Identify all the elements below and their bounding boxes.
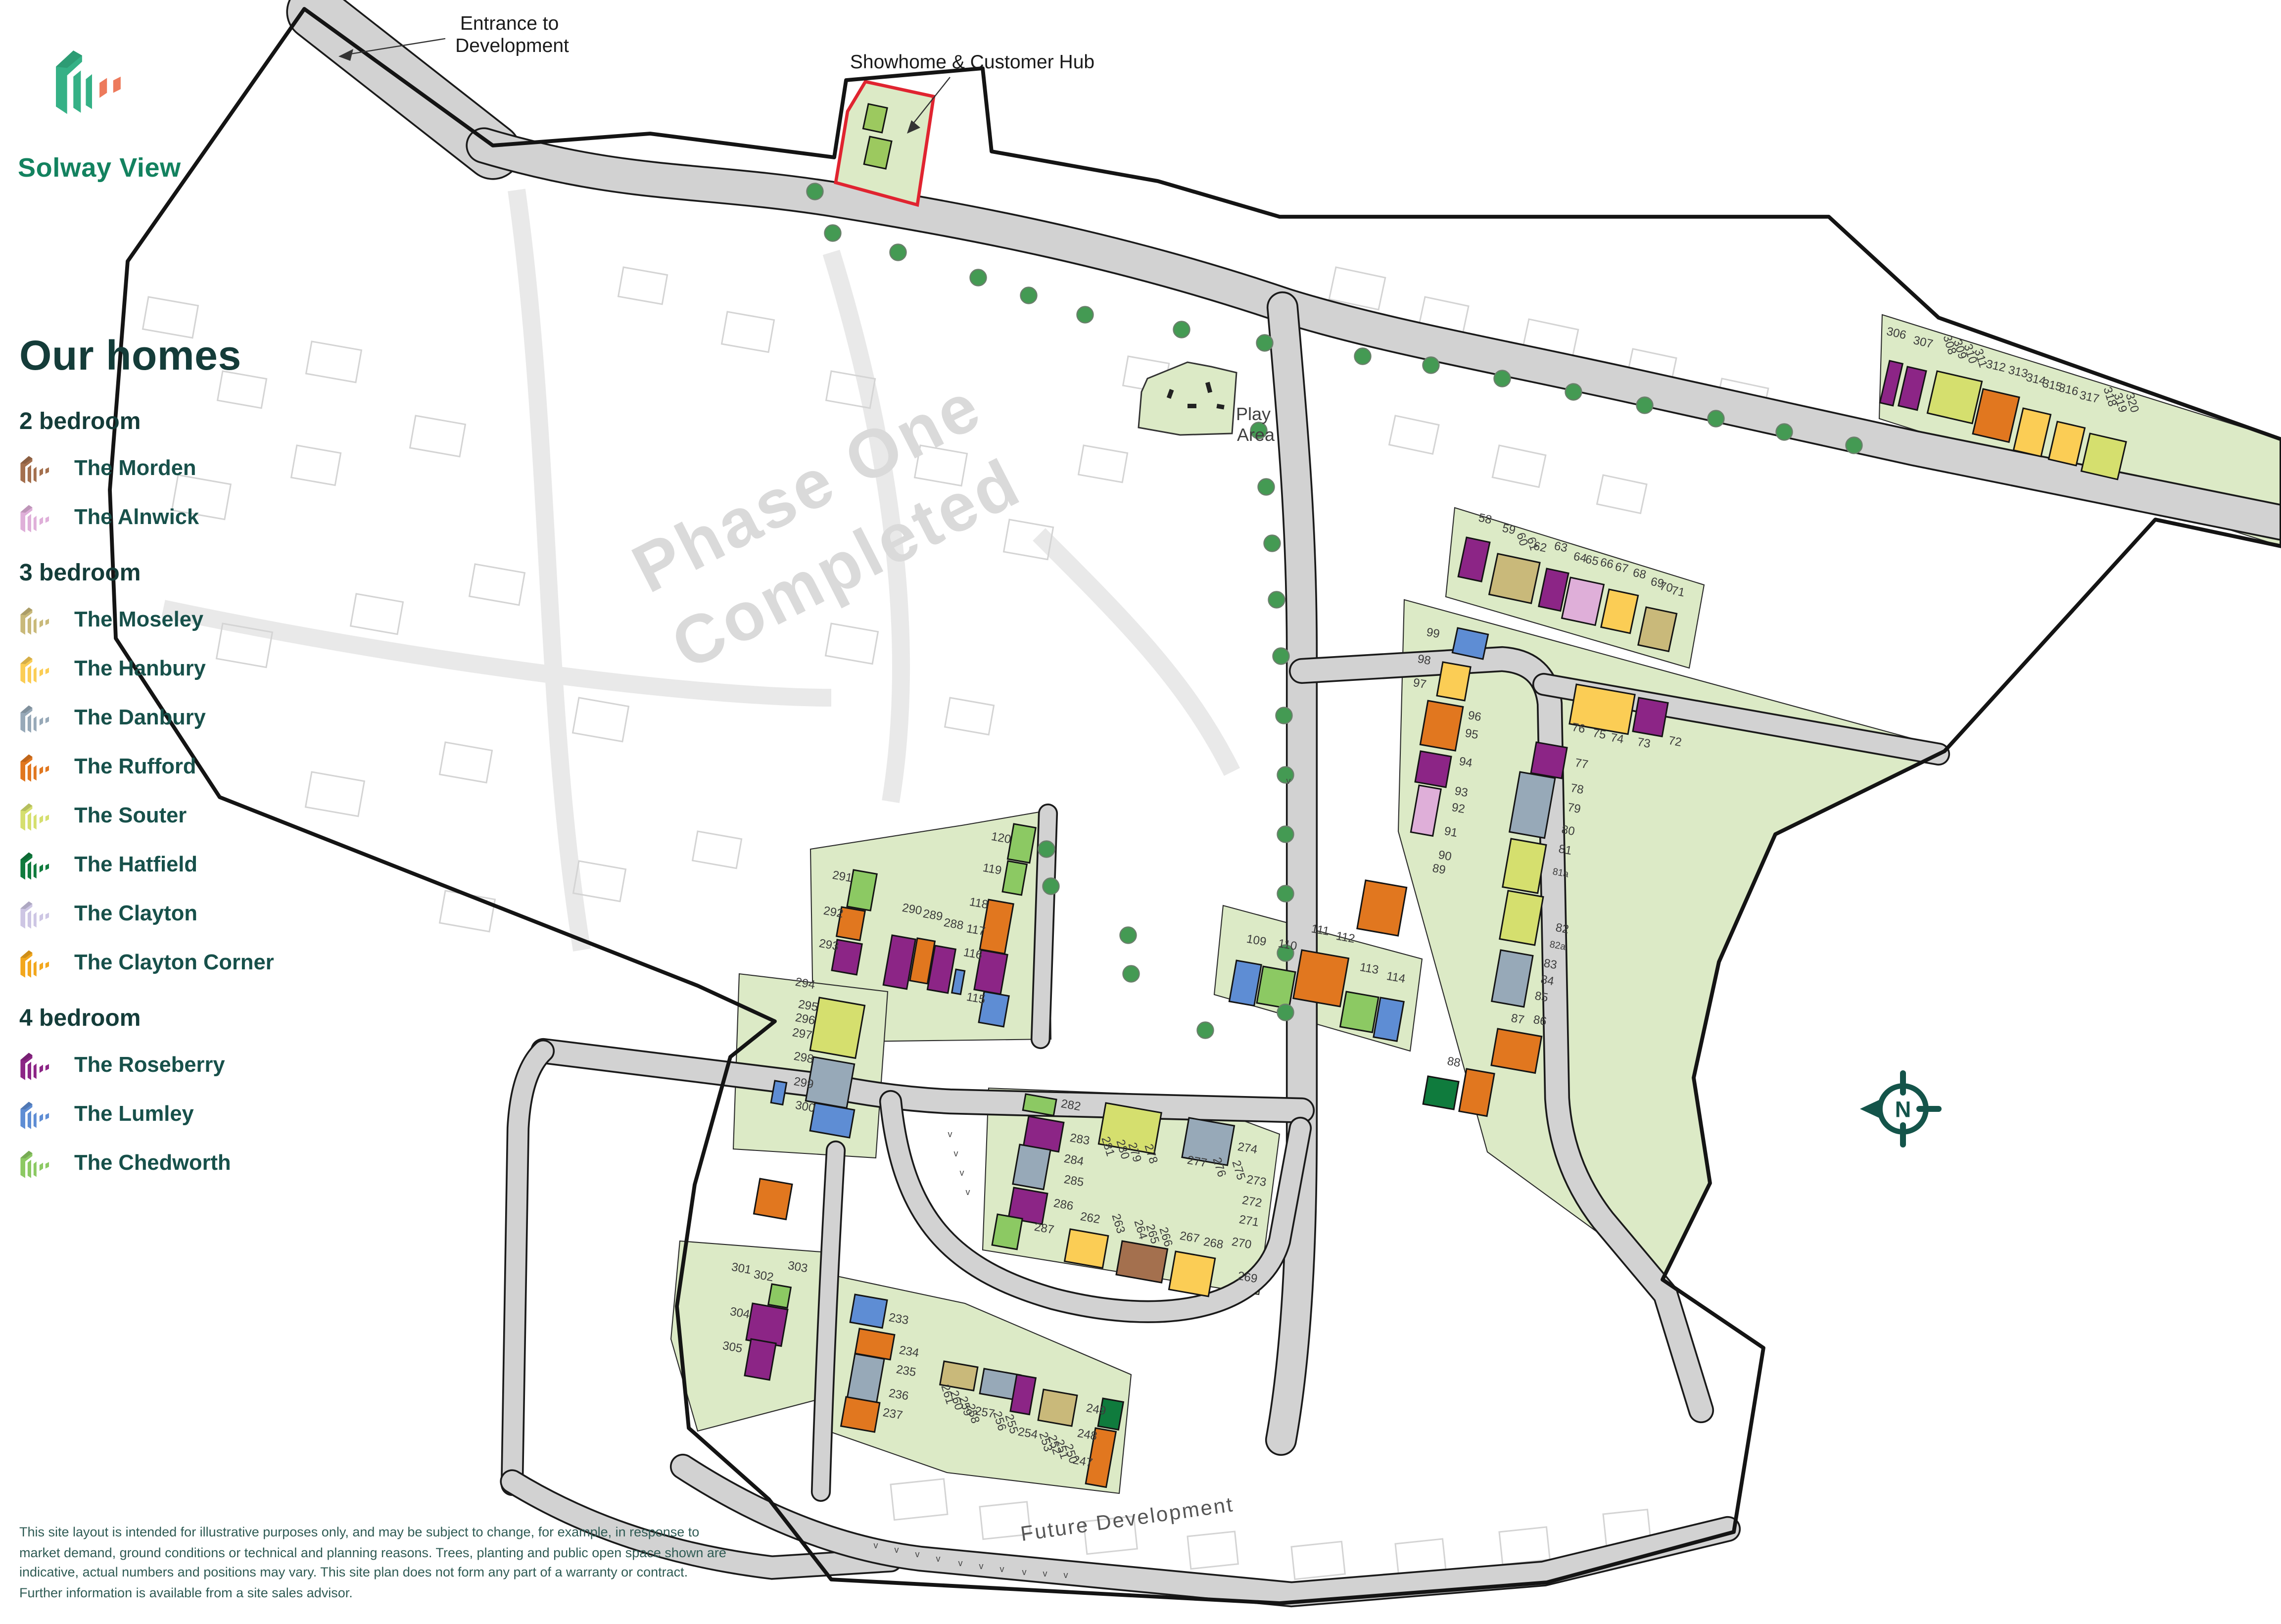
phase1-house-outline	[1597, 475, 1647, 513]
tree-icon	[1264, 535, 1281, 552]
tree-icon	[1174, 322, 1190, 338]
building-roseberry	[1633, 698, 1668, 736]
legend-item-label: The Alnwick	[74, 506, 199, 529]
tree-icon	[1776, 424, 1793, 440]
legend-item-label: The Lumley	[74, 1102, 194, 1126]
tree-icon	[1276, 708, 1292, 724]
legend-item-the-rufford: The Rufford	[19, 742, 509, 791]
plot-label-79: 79	[1567, 801, 1582, 816]
plot-label-94: 94	[1458, 755, 1473, 770]
svg-text:N: N	[1895, 1097, 1911, 1122]
legend-item-the-clayton: The Clayton	[19, 889, 509, 938]
legend-item-label: The Clayton	[74, 902, 197, 926]
house-type-icon	[19, 849, 55, 881]
tree-icon	[1846, 437, 1862, 454]
play-equipment-icon	[1188, 404, 1196, 408]
plot-label-91: 91	[1443, 824, 1459, 840]
building-souter	[1503, 839, 1546, 893]
building-rufford	[754, 1179, 792, 1219]
visitor-parking-mark: v	[948, 1129, 952, 1139]
tree-icon	[1197, 1022, 1214, 1039]
tree-icon	[1355, 348, 1371, 365]
brand-name: Solway View	[18, 153, 181, 184]
tree-icon	[1423, 357, 1439, 374]
building-souter	[2081, 433, 2126, 479]
visitor-parking-mark: v	[1286, 776, 1291, 786]
legend-item-the-chedworth: The Chedworth	[19, 1139, 509, 1188]
building-moseley	[1038, 1389, 1077, 1426]
house-type-icon	[19, 1098, 55, 1131]
building-roseberry	[1415, 751, 1451, 787]
plot-label-82: 82	[1555, 921, 1570, 936]
brand-logo-icon	[53, 39, 131, 125]
plot-label-99: 99	[1426, 625, 1441, 641]
building-rufford	[841, 1397, 880, 1432]
phase1-house-outline	[572, 698, 628, 742]
building-lumley	[850, 1294, 887, 1328]
compass-north-icon: N	[1860, 1073, 1939, 1145]
house-type-icon	[19, 800, 55, 832]
plot-label-87: 87	[1510, 1011, 1525, 1027]
road	[543, 1051, 1302, 1110]
legend-item-label: The Moseley	[74, 608, 203, 632]
phase1-house-outline	[1079, 445, 1128, 482]
building-hanbury	[1169, 1251, 1215, 1296]
phase1-house-outline	[143, 297, 198, 338]
tree-icon	[825, 225, 841, 241]
legend-item-label: The Chedworth	[74, 1151, 231, 1175]
visitor-parking-mark: v	[1043, 1569, 1047, 1578]
legend-group-3-bedroom: 3 bedroom	[19, 561, 509, 588]
building-hanbury	[1437, 662, 1471, 701]
plot-label-97: 97	[1412, 676, 1427, 691]
building-souter	[1927, 371, 1982, 424]
homes-legend: Our homes 2 bedroom The Morden The Alnwi…	[19, 333, 509, 1188]
visitor-parking-mark: v	[915, 1549, 920, 1559]
legend-item-label: The Roseberry	[74, 1053, 225, 1077]
legend-item-the-hatfield: The Hatfield	[19, 840, 509, 889]
legend-item-label: The Clayton Corner	[74, 951, 274, 975]
plot-label-78: 78	[1569, 781, 1585, 797]
legend-item-label: The Danbury	[74, 706, 206, 730]
site-plan-page: vvvvvvvvvvvvvvv3063073083093103113123133…	[0, 0, 2281, 1624]
legend-item-the-danbury: The Danbury	[19, 693, 509, 742]
plot-label-62: 62	[1532, 539, 1548, 555]
visitor-parking-mark: v	[895, 1545, 899, 1555]
visitor-parking-mark: v	[1022, 1567, 1027, 1577]
plot-label-98: 98	[1417, 652, 1432, 668]
plot-label-89: 89	[1431, 861, 1447, 877]
plot-label-72: 72	[1667, 734, 1683, 749]
visitor-parking-mark: v	[874, 1540, 878, 1550]
building-rufford	[1491, 1029, 1542, 1073]
plot-label-84: 84	[1540, 973, 1555, 988]
tree-icon	[890, 244, 906, 261]
house-type-icon	[19, 604, 55, 636]
legend-item-label: The Morden	[74, 457, 196, 480]
building-lumley	[810, 1103, 855, 1138]
visitor-parking-mark: v	[966, 1187, 970, 1197]
legend-item-the-alnwick: The Alnwick	[19, 493, 509, 542]
house-type-icon	[19, 751, 55, 783]
phase1-house-outline	[1188, 1531, 1238, 1569]
showhome-label: Showhome & Customer Hub	[850, 51, 1094, 73]
tree-icon	[1278, 886, 1294, 902]
plot-label-95: 95	[1464, 726, 1479, 742]
legend-item-the-clayton-corner: The Clayton Corner	[19, 938, 509, 987]
building-moseley	[1489, 554, 1540, 603]
building-souter	[810, 998, 864, 1058]
entrance-label: Entrance to Development	[455, 13, 569, 56]
plot-label-77: 77	[1574, 756, 1589, 771]
building-rufford	[1420, 701, 1463, 751]
phase1-house-outline	[826, 623, 878, 664]
house-type-icon	[19, 947, 55, 979]
phase-one-watermark: Phase One Completed	[621, 367, 1033, 684]
building-rufford	[1357, 880, 1407, 936]
tree-icon	[1120, 927, 1137, 944]
house-type-icon	[19, 898, 55, 930]
house-type-icon	[19, 1147, 55, 1180]
plot-label-74: 74	[1610, 731, 1625, 746]
plot-label-80: 80	[1561, 823, 1576, 838]
legend-item-the-souter: The Souter	[19, 791, 509, 840]
building-morden	[1116, 1241, 1168, 1283]
tree-icon	[1278, 1004, 1294, 1021]
building-roseberry	[745, 1339, 776, 1380]
phase1-house-outline	[945, 698, 994, 735]
building-chedworth	[1340, 992, 1378, 1032]
building-hatfield	[1423, 1076, 1459, 1109]
visitor-parking-mark: v	[958, 1558, 963, 1568]
building-lumley	[1452, 628, 1488, 659]
tree-icon	[807, 184, 823, 200]
plot-label-93: 93	[1454, 784, 1469, 800]
disclaimer-text: This site layout is intended for illustr…	[19, 1523, 732, 1603]
phase1-house-outline	[1492, 445, 1546, 487]
road	[484, 145, 2281, 523]
plot-label-73: 73	[1636, 735, 1652, 751]
legend-item-label: The Souter	[74, 804, 187, 828]
house-type-icon	[19, 702, 55, 734]
tree-icon	[1278, 767, 1294, 783]
legend-group-4-bedroom: 4 bedroom	[19, 1006, 509, 1033]
tree-icon	[1043, 878, 1059, 895]
tree-icon	[1021, 287, 1037, 304]
tree-icon	[1494, 371, 1511, 387]
phase1-house-outline	[1389, 416, 1439, 454]
legend-item-label: The Rufford	[74, 755, 196, 779]
legend-item-the-lumley: The Lumley	[19, 1090, 509, 1139]
legend-item-the-moseley: The Moseley	[19, 595, 509, 644]
phase1-house-outline	[891, 1479, 948, 1520]
building-showgreen	[863, 104, 887, 133]
future-development-label: Future Development	[1019, 1492, 1236, 1545]
play-area	[1139, 362, 1236, 435]
building-chedworth	[992, 1214, 1022, 1249]
plot-label-86: 86	[1532, 1013, 1548, 1028]
legend-item-the-morden: The Morden	[19, 444, 509, 493]
tree-icon	[1258, 479, 1275, 495]
phase1-road	[1039, 534, 1232, 772]
plot-label-76: 76	[1571, 720, 1586, 736]
building-showgreen	[864, 137, 892, 169]
tree-icon	[970, 270, 987, 286]
tree-icon	[1077, 307, 1093, 323]
house-type-icon	[19, 1049, 55, 1082]
plot-label-67: 67	[1614, 560, 1630, 576]
visitor-parking-mark: v	[1000, 1564, 1004, 1574]
plot-label-65: 65	[1584, 553, 1600, 569]
plot-label-68: 68	[1632, 566, 1648, 582]
tree-icon	[1257, 335, 1273, 351]
plot-label-81: 81	[1558, 842, 1573, 858]
building-chedworth	[768, 1284, 791, 1308]
building-hanbury	[1065, 1229, 1108, 1268]
house-type-icon	[19, 452, 55, 485]
legend-group-2-bedroom: 2 bedroom	[19, 410, 509, 436]
plot-label-66: 66	[1599, 556, 1615, 572]
tree-icon	[1566, 384, 1582, 400]
legend-item-label: The Hanbury	[74, 657, 206, 681]
plot-label-63: 63	[1553, 539, 1569, 555]
plot-label-75: 75	[1592, 726, 1607, 742]
tree-icon	[1278, 826, 1294, 843]
plot-label-58: 58	[1477, 511, 1493, 527]
play-area-label: Play Area	[1236, 404, 1276, 445]
phase1-road	[517, 190, 582, 950]
plot-label-83: 83	[1543, 956, 1558, 972]
phase1-house-outline	[1291, 1541, 1345, 1579]
building-souter	[1500, 891, 1543, 945]
tree-icon	[1637, 397, 1653, 414]
tree-icon	[1123, 966, 1140, 982]
legend-title: Our homes	[19, 333, 509, 380]
phase1-house-outline	[1499, 1527, 1550, 1565]
visitor-parking-mark: v	[936, 1554, 941, 1564]
building-danbury	[1013, 1145, 1050, 1190]
visitor-parking-mark: v	[954, 1148, 958, 1158]
legend-item-the-hanbury: The Hanbury	[19, 644, 509, 693]
plot-label-71: 71	[1670, 584, 1686, 600]
legend-item-the-roseberry: The Roseberry	[19, 1041, 509, 1090]
visitor-parking-mark: v	[979, 1561, 984, 1571]
plot-label-88: 88	[1446, 1054, 1462, 1070]
phase1-house-outline	[693, 831, 742, 868]
plot-label-85: 85	[1534, 989, 1549, 1004]
building-rufford	[1293, 950, 1349, 1006]
legend-item-label: The Hatfield	[74, 853, 197, 877]
phase1-house-outline	[618, 267, 667, 304]
tree-icon	[1708, 411, 1724, 427]
house-type-icon	[19, 653, 55, 685]
phase1-house-outline	[722, 312, 774, 352]
visitor-parking-mark: v	[960, 1168, 964, 1178]
plot-label-92: 92	[1451, 801, 1466, 816]
tree-icon	[1039, 841, 1055, 858]
building-chedworth	[1257, 966, 1295, 1008]
plot-label-90: 90	[1437, 848, 1453, 863]
plot-label-96: 96	[1467, 709, 1482, 724]
building-roseberry	[1531, 742, 1567, 778]
house-type-icon	[19, 501, 55, 534]
road	[512, 1051, 543, 1484]
tree-icon	[1269, 592, 1285, 608]
visitor-parking-mark: v	[1064, 1570, 1068, 1580]
tree-icon	[1273, 648, 1289, 665]
